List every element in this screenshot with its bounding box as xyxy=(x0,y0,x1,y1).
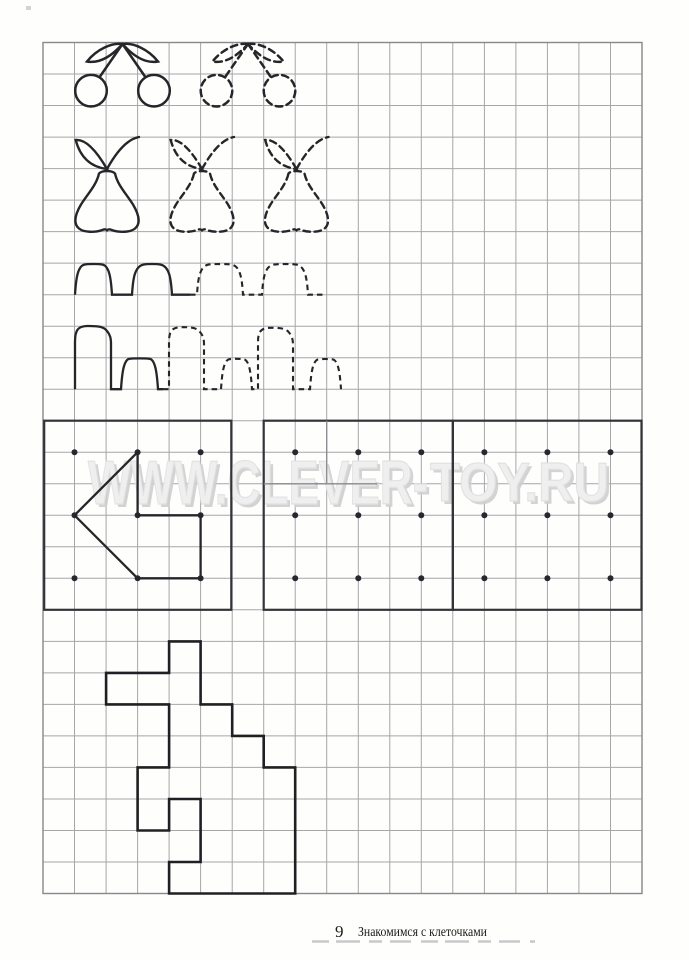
svg-text:9: 9 xyxy=(335,922,344,941)
svg-text:TOY.RU: TOY.RU xyxy=(430,451,609,513)
svg-text:Знакомимся с клеточками: Знакомимся с клеточками xyxy=(358,925,487,940)
